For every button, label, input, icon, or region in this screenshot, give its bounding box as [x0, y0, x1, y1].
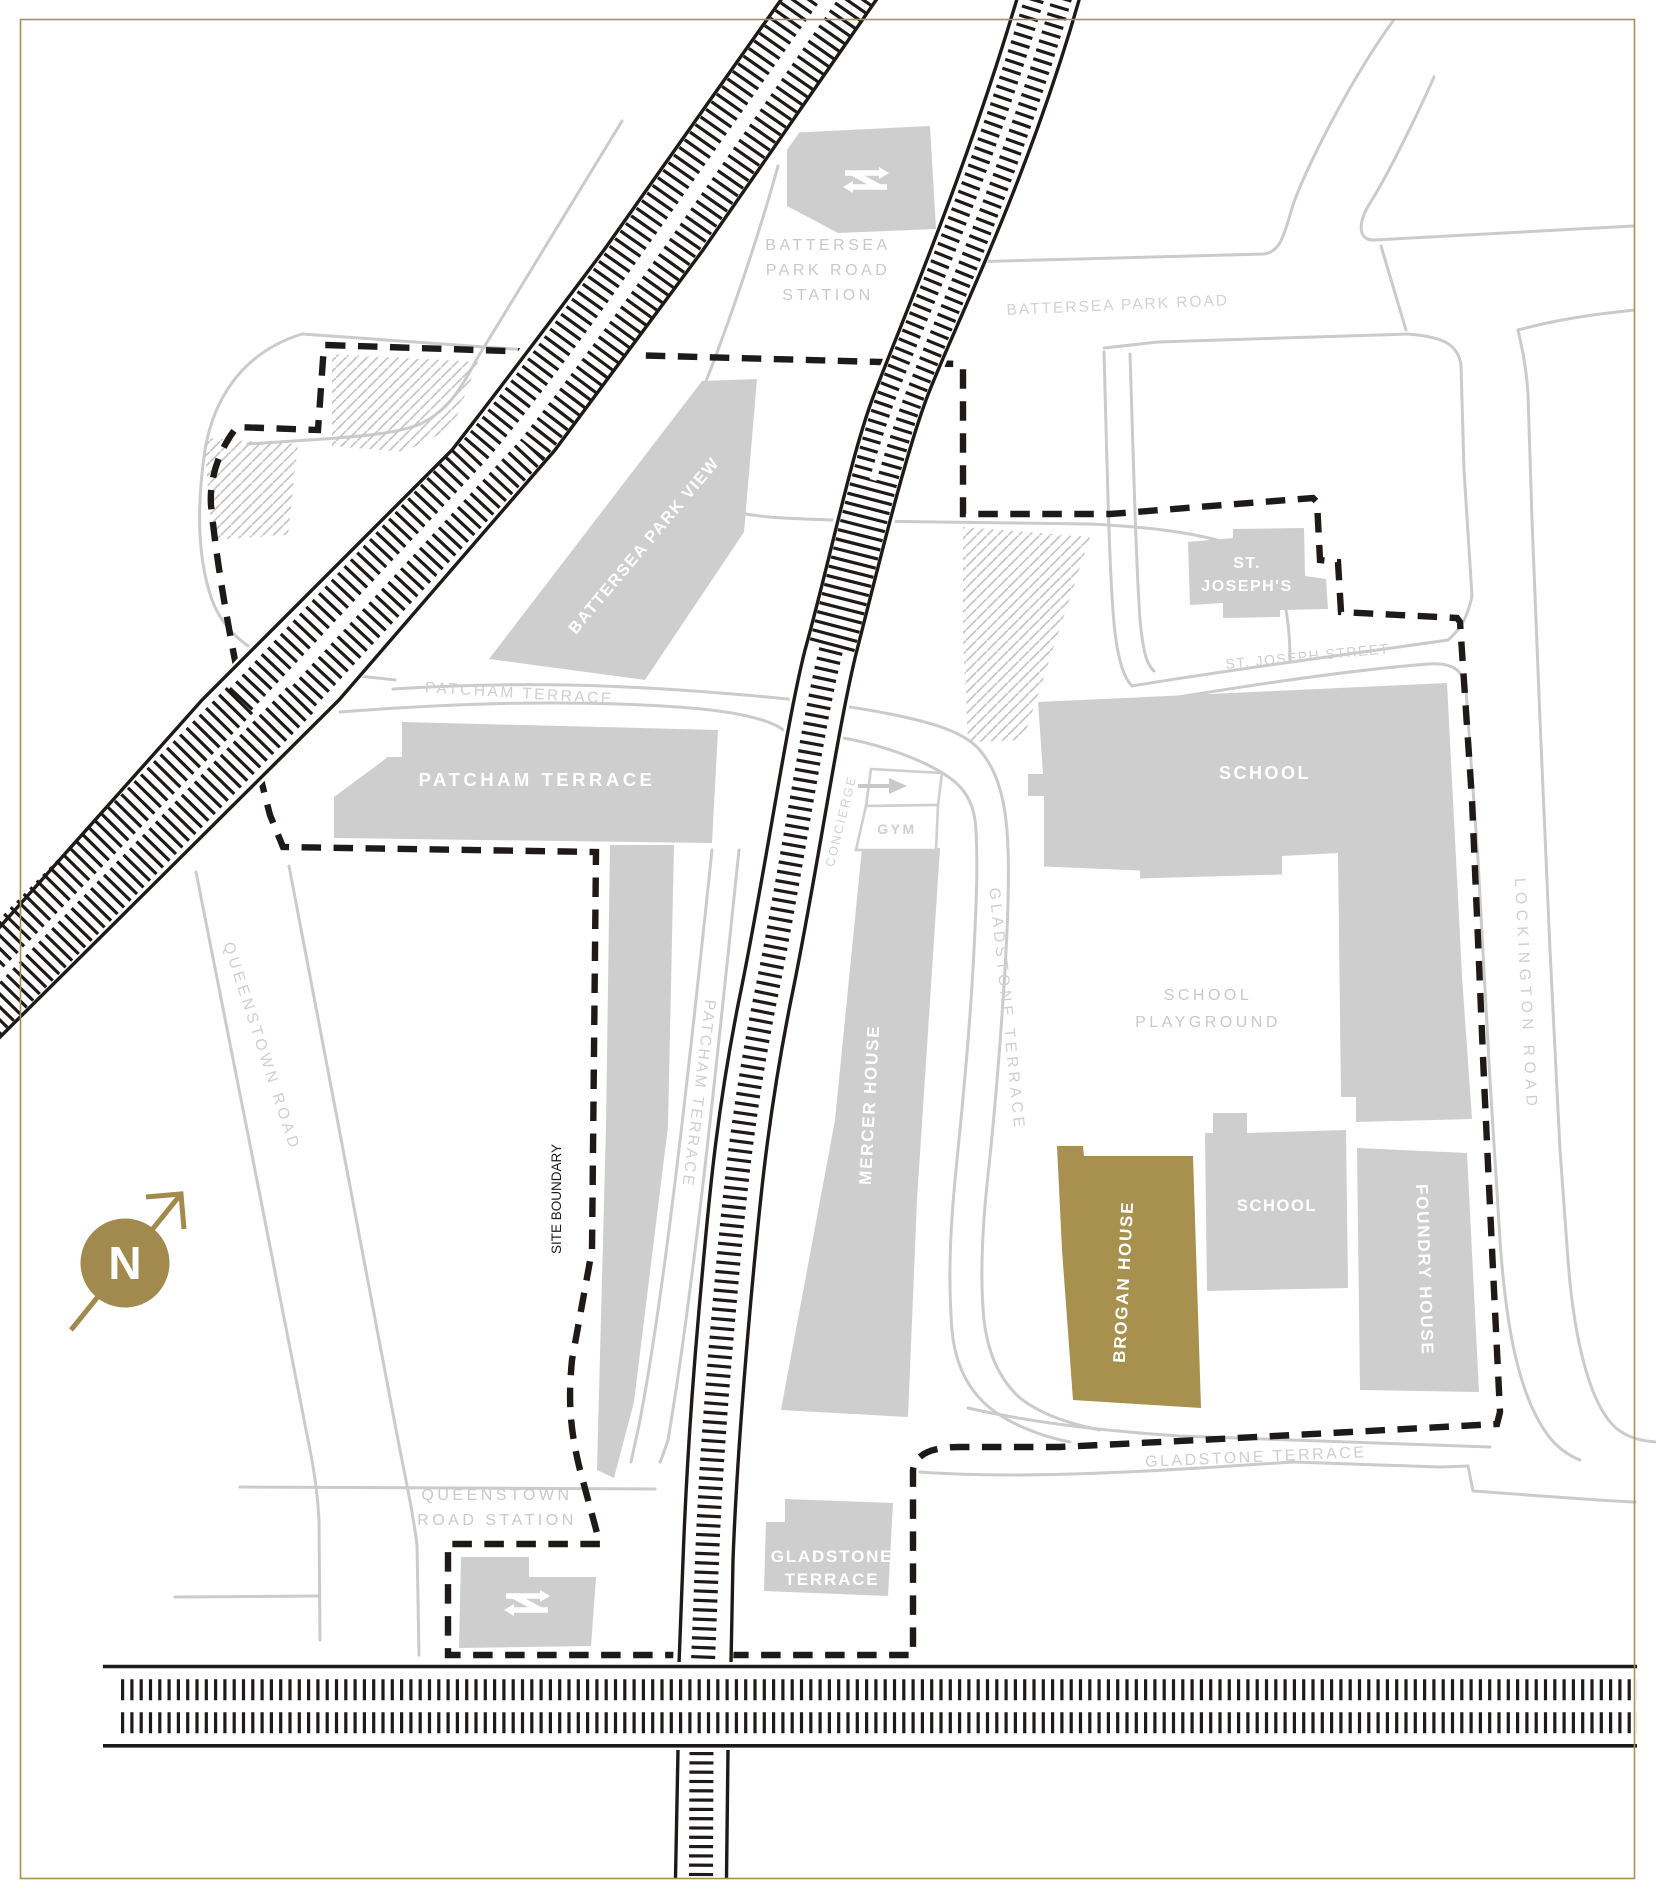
- svg-text:PLAYGROUND: PLAYGROUND: [1135, 1014, 1281, 1031]
- svg-text:GLADSTONE: GLADSTONE: [771, 1547, 894, 1566]
- svg-text:GYM: GYM: [877, 821, 916, 837]
- svg-text:ROAD STATION: ROAD STATION: [417, 1512, 577, 1529]
- svg-text:JOSEPH'S: JOSEPH'S: [1201, 578, 1292, 595]
- svg-text:QUEENSTOWN: QUEENSTOWN: [421, 1487, 572, 1504]
- svg-text:BATTERSEA: BATTERSEA: [765, 237, 890, 254]
- svg-text:ST.: ST.: [1233, 555, 1261, 572]
- svg-text:STATION: STATION: [782, 287, 873, 304]
- svg-text:N: N: [108, 1237, 141, 1289]
- svg-text:SCHOOL: SCHOOL: [1237, 1197, 1317, 1215]
- svg-text:TERRACE: TERRACE: [785, 1570, 880, 1589]
- svg-text:PATCHAM TERRACE: PATCHAM TERRACE: [419, 769, 656, 790]
- svg-text:PARK ROAD: PARK ROAD: [766, 262, 891, 279]
- svg-text:SCHOOL: SCHOOL: [1164, 987, 1253, 1004]
- svg-text:SCHOOL: SCHOOL: [1219, 763, 1311, 783]
- svg-text:SITE BOUNDARY: SITE BOUNDARY: [549, 1144, 564, 1254]
